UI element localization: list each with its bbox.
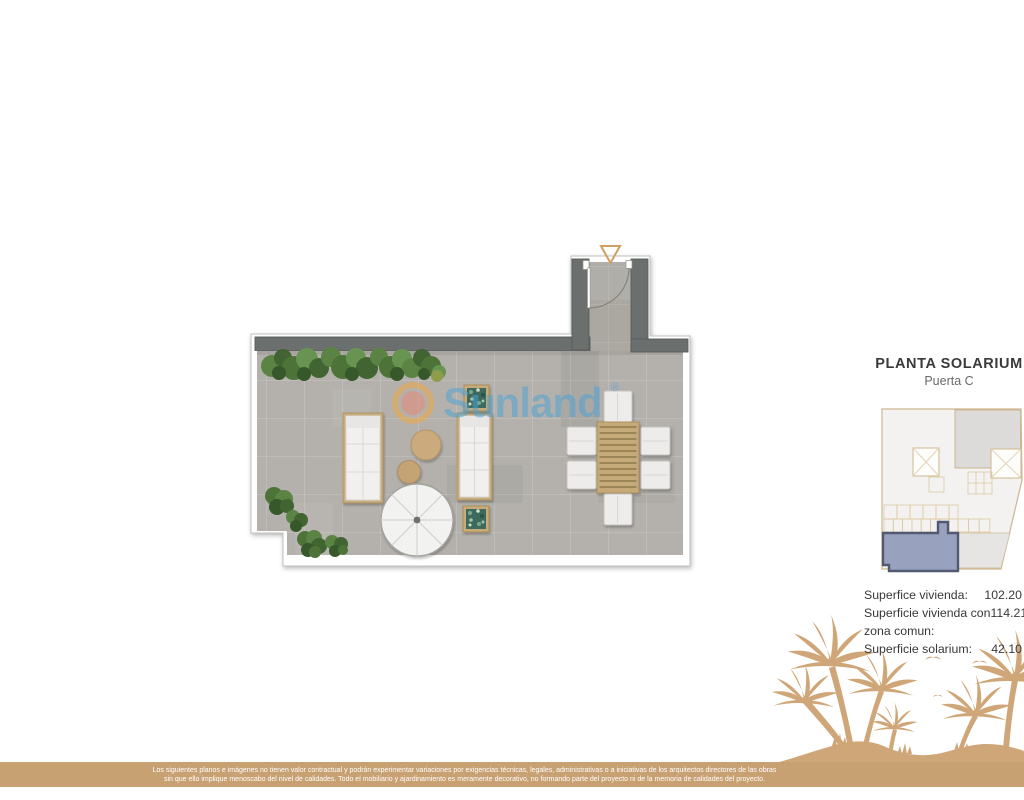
floor-plan-canvas bbox=[0, 0, 1024, 800]
area-label: zona comun: bbox=[864, 622, 934, 640]
sun-lounger-middle bbox=[457, 413, 492, 500]
brochure-page: Sunland ® PLANTA SOLARIUM Puerta C Super… bbox=[0, 0, 1024, 800]
key-plan-lower-right bbox=[958, 533, 1010, 568]
key-plan-inset bbox=[882, 409, 1022, 571]
page-title: PLANTA SOLARIUM bbox=[868, 356, 1024, 373]
planter-box-top bbox=[464, 385, 489, 411]
table-row: zona comun: bbox=[864, 622, 1022, 640]
area-label: Superfice vivienda: bbox=[864, 586, 968, 604]
surface-areas-table: Superfice vivienda: 102.20 Superficie vi… bbox=[864, 586, 1022, 658]
parasol-umbrella bbox=[381, 484, 453, 556]
area-value: 114.21 bbox=[990, 604, 1024, 622]
area-value: 42.10 bbox=[991, 640, 1022, 658]
disclaimer-bar: Los siguientes planos e imágenes no tien… bbox=[0, 762, 1024, 787]
area-label: Superficie vivienda con bbox=[864, 604, 990, 622]
sun-lounger-left bbox=[343, 413, 383, 503]
page-subtitle: Puerta C bbox=[868, 373, 1024, 389]
disclaimer-line-1: Los siguientes planos e imágenes no tien… bbox=[10, 766, 919, 776]
table-row: Superficie vivienda con 114.21 bbox=[864, 604, 1022, 622]
disclaimer-line-2: sin que ello implique menoscabo del nive… bbox=[10, 775, 919, 785]
dining-table bbox=[597, 422, 639, 493]
area-label: Superficie solarium: bbox=[864, 640, 972, 658]
plan-title-block: PLANTA SOLARIUM Puerta C bbox=[868, 356, 1024, 389]
table-row: Superfice vivienda: 102.20 bbox=[864, 586, 1022, 604]
entry-shaft bbox=[589, 262, 631, 351]
planter-box-bottom bbox=[463, 506, 489, 532]
main-floor-plan bbox=[251, 246, 690, 566]
area-value: 102.20 bbox=[984, 586, 1022, 604]
table-row: Superficie solarium: 42.10 bbox=[864, 640, 1022, 658]
